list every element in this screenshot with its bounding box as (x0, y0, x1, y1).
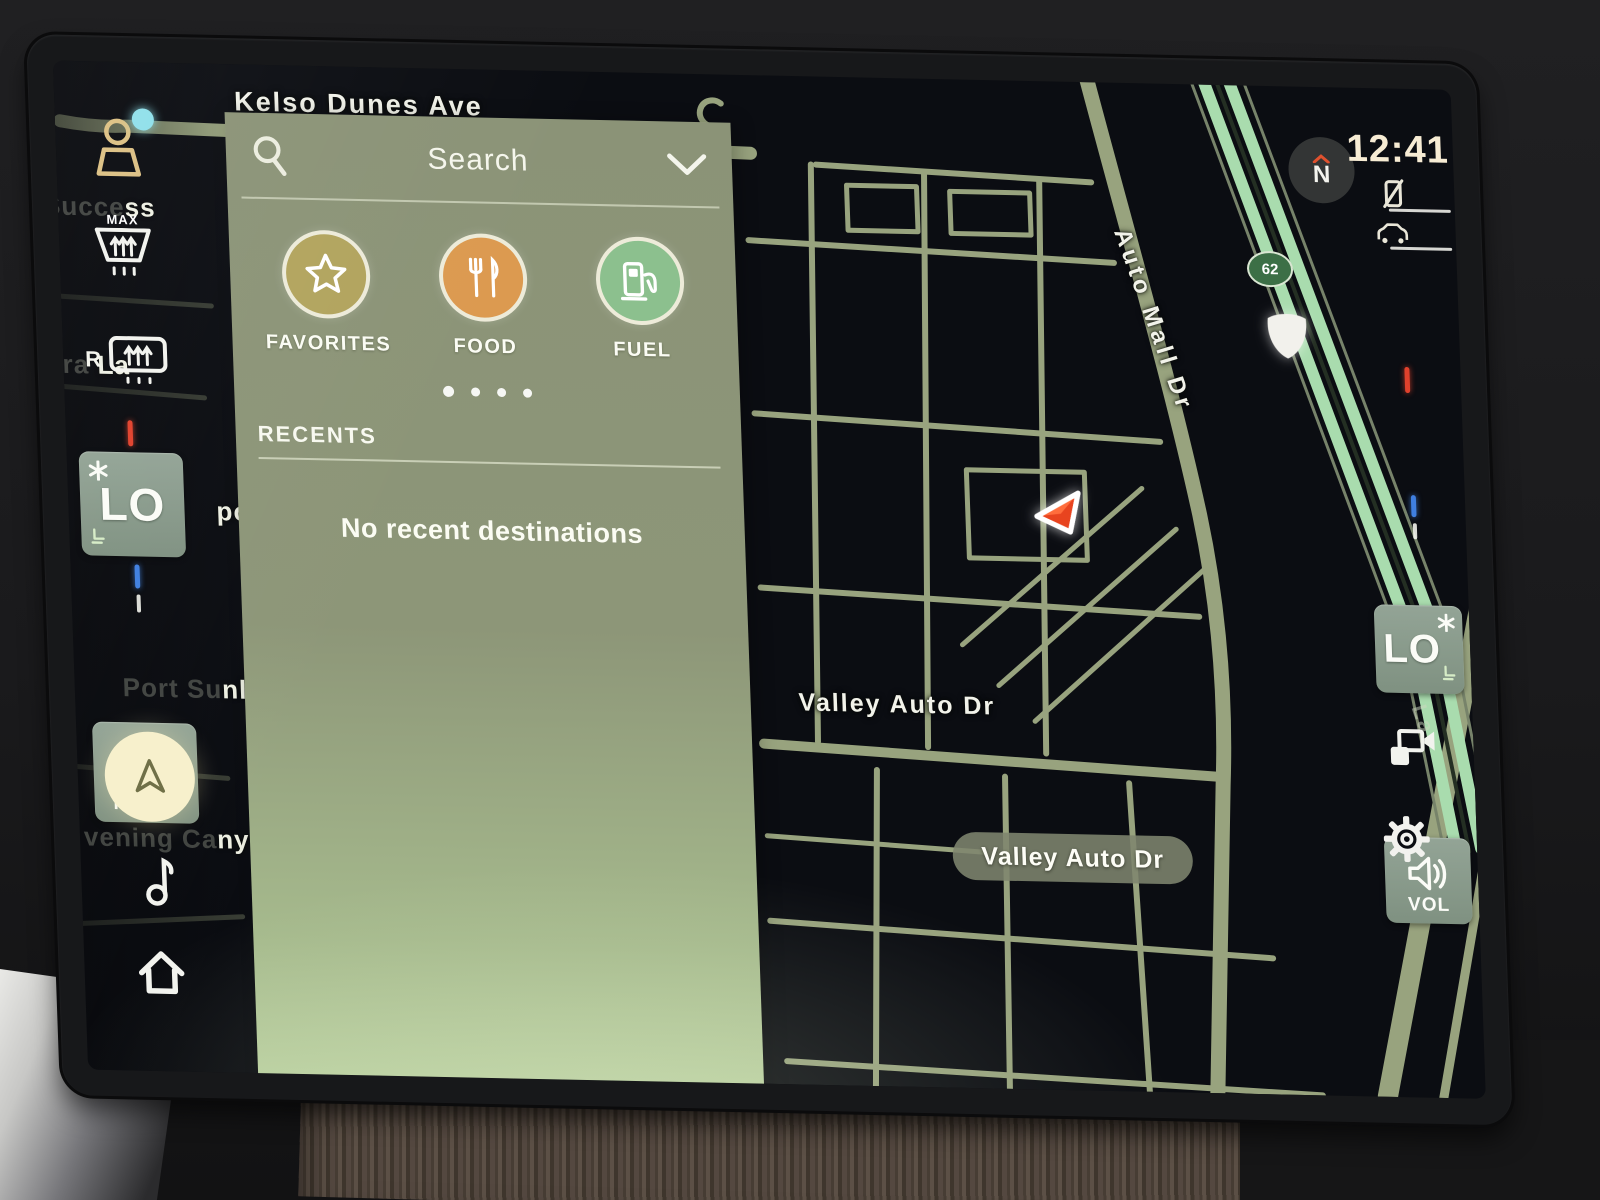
screen-bezel: Kelso Dunes Ave Auto Mall Dr Valley Auto… (26, 34, 1513, 1125)
right-temp-slider-cold-tick[interactable] (1411, 495, 1417, 517)
search-header[interactable]: Search (225, 112, 734, 201)
rear-defrost-label: R (85, 346, 102, 372)
recents-header: RECENTS (257, 421, 720, 457)
current-street-pill: Valley Auto Dr (952, 832, 1194, 885)
temp-slider-cold-tick[interactable] (134, 564, 140, 588)
temp-slider-hot-tick[interactable] (127, 420, 133, 446)
search-panel: Search FAVORITES (225, 112, 765, 1099)
snowflake-icon (88, 460, 109, 480)
route-shield-badge (1263, 308, 1311, 361)
clock: 12:41 (1346, 128, 1450, 173)
page-dot[interactable] (442, 386, 453, 397)
max-defrost-button[interactable]: MAX (88, 211, 158, 280)
food-label: FOOD (415, 334, 556, 360)
right-temp-value: LO (1383, 626, 1442, 672)
camera-button[interactable] (1384, 725, 1438, 781)
navigation-arrow-icon (126, 753, 174, 800)
slider-dash (1413, 523, 1418, 539)
street-label-valley: Valley Auto Dr (798, 688, 996, 721)
recents-section: RECENTS No recent destinations (235, 420, 745, 552)
home-icon (134, 946, 190, 997)
page-dots (234, 381, 740, 403)
notification-dot (131, 108, 154, 130)
category-row: FAVORITES FOOD (228, 198, 739, 364)
rear-defrost-icon (106, 334, 170, 387)
favorites-label: FAVORITES (258, 331, 399, 357)
compass-north-label: N (1313, 164, 1331, 186)
settings-button[interactable] (1382, 815, 1432, 869)
photo-background: Kelso Dunes Ave Auto Mall Dr Valley Auto… (0, 0, 1600, 1200)
profile-button[interactable] (88, 113, 148, 183)
fuel-category-button[interactable]: FUEL (569, 235, 713, 363)
search-title: Search (289, 140, 666, 182)
restaurant-icon (462, 255, 504, 300)
music-button[interactable] (137, 854, 177, 912)
video-camera-icon (1384, 725, 1438, 776)
volume-label: VOL (1386, 894, 1473, 918)
home-button[interactable] (134, 946, 190, 1002)
max-defrost-label: MAX (106, 212, 138, 228)
fuel-circle (595, 236, 686, 326)
chevron-down-icon[interactable] (665, 151, 708, 178)
phone-disconnected-icon[interactable] (1382, 178, 1405, 208)
fuel-pump-icon (618, 258, 662, 303)
right-temp-slider-hot-tick[interactable] (1404, 367, 1410, 393)
infotainment-screen: Kelso Dunes Ave Auto Mall Dr Valley Auto… (53, 61, 1486, 1099)
right-temperature-button[interactable]: LO (1374, 604, 1465, 694)
food-circle (438, 233, 529, 323)
favorites-category-button[interactable]: FAVORITES (255, 229, 399, 357)
page-dot[interactable] (470, 387, 479, 396)
gear-icon (1382, 815, 1432, 864)
dim-street-label: vening Cany (83, 821, 250, 855)
left-temp-value: LO (98, 477, 166, 532)
page-dot[interactable] (496, 388, 505, 397)
dim-street-label: Port Sunl (122, 672, 248, 706)
search-icon (249, 133, 291, 180)
music-note-icon (137, 854, 177, 907)
seat-icon (89, 527, 108, 545)
car-status-icon[interactable] (1375, 220, 1410, 245)
fuel-label: FUEL (572, 338, 713, 364)
seat-icon (1441, 665, 1459, 682)
favorites-circle (281, 229, 372, 319)
food-category-button[interactable]: FOOD (412, 232, 556, 360)
page-dot[interactable] (522, 388, 531, 397)
left-temperature-button[interactable]: LO (79, 451, 187, 557)
star-icon (302, 251, 350, 298)
recents-empty-message: No recent destinations (260, 511, 723, 552)
slider-dash (136, 594, 141, 612)
recents-divider (259, 457, 721, 469)
snowflake-icon (1437, 614, 1456, 632)
rear-defrost-button[interactable]: R (84, 333, 170, 387)
windshield-defrost-icon (89, 227, 159, 280)
vehicle-location-arrow (1030, 483, 1090, 542)
